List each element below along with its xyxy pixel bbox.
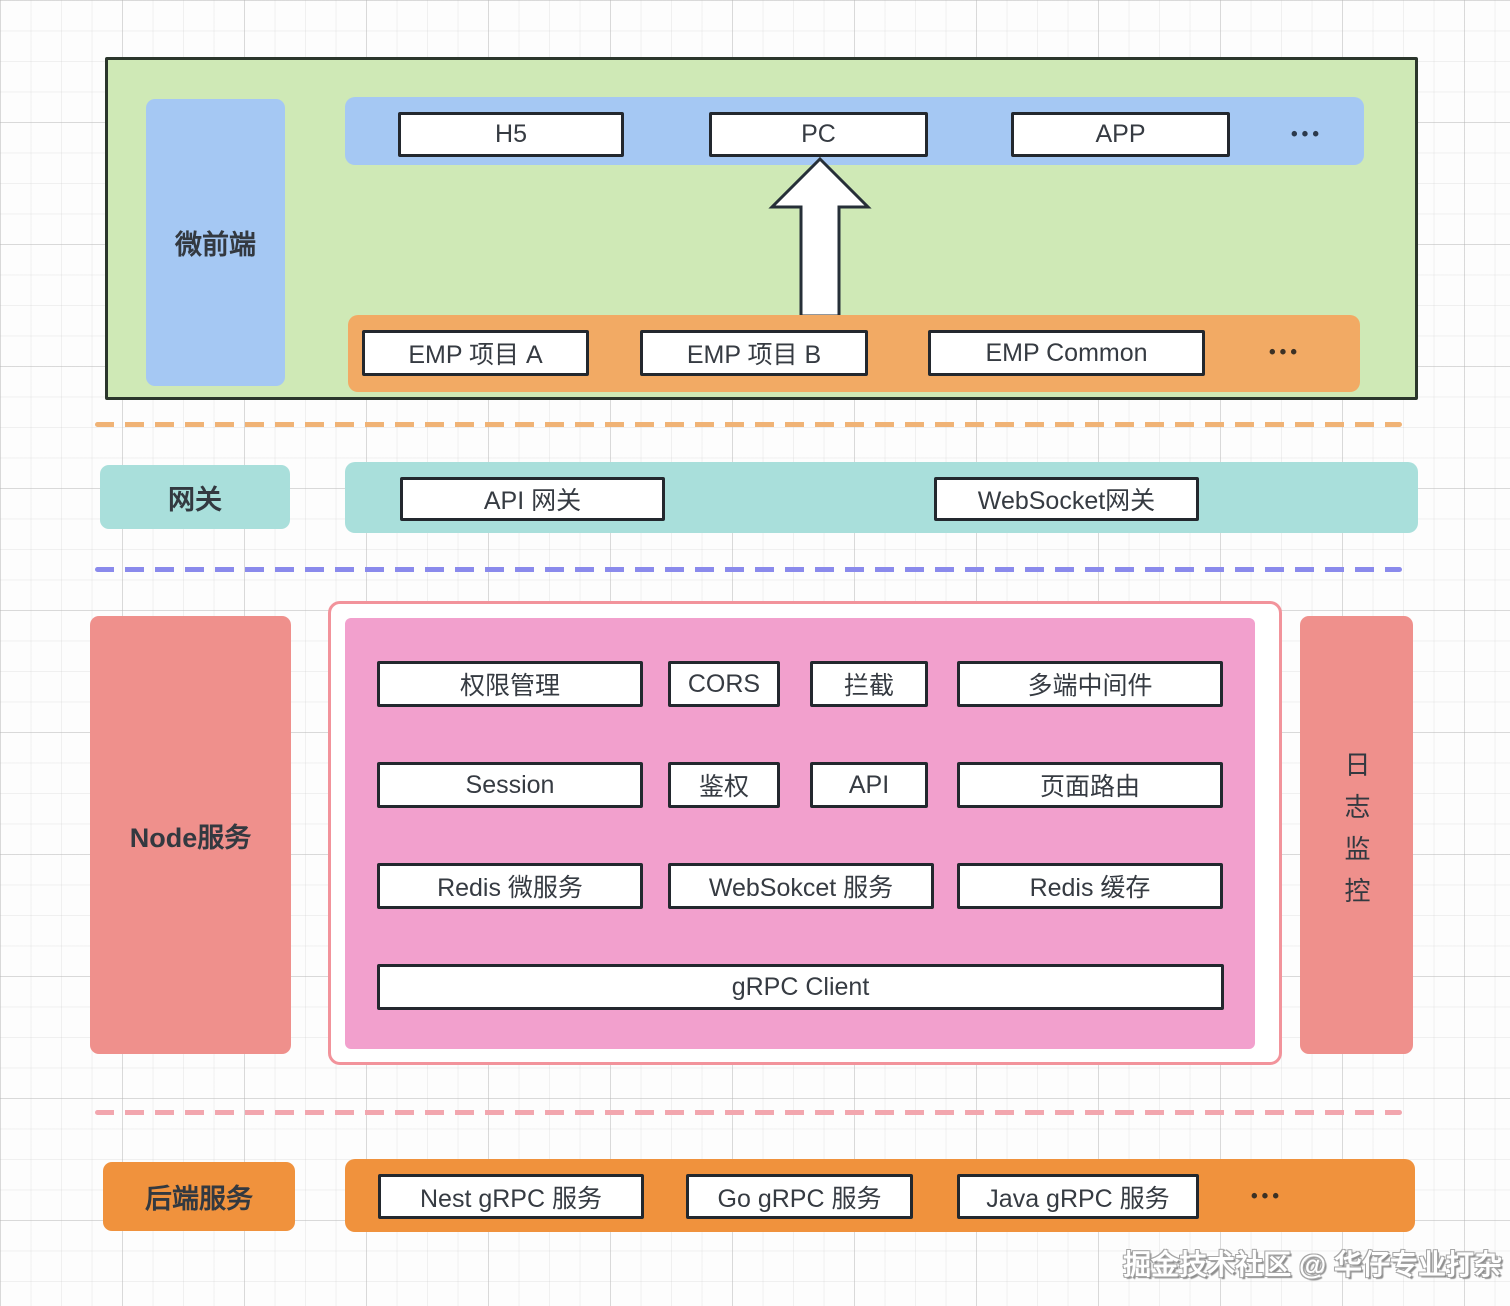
- node-page-router-label: 页面路由: [1040, 767, 1140, 803]
- emp-common-label: EMP Common: [985, 339, 1147, 368]
- backend-ellipsis-text: •••: [1251, 1186, 1283, 1208]
- backend-label-text: 后端服务: [145, 1177, 253, 1216]
- micro-frontend-label: 微前端: [146, 99, 285, 386]
- emp-project-a-label: EMP 项目 A: [408, 335, 542, 371]
- client-app-label: APP: [1095, 120, 1145, 149]
- watermark: 掘金技术社区 @ 华仔专业打杂: [1123, 1243, 1502, 1283]
- node-auth-label: 鉴权: [699, 767, 749, 803]
- node-multi-middleware-label: 多端中间件: [1027, 666, 1152, 702]
- client-pc-label: PC: [801, 120, 836, 149]
- emp-box-common: EMP Common: [928, 330, 1205, 376]
- gateway-box-api: API 网关: [400, 477, 665, 521]
- upward-arrow-icon: [760, 150, 880, 322]
- node-session-label: Session: [466, 771, 555, 800]
- backend-go-label: Go gRPC 服务: [718, 1179, 882, 1215]
- node-redis-microservice-label: Redis 微服务: [437, 868, 583, 904]
- micro-frontend-label-text: 微前端: [175, 223, 256, 262]
- node-cors-label: CORS: [688, 670, 760, 699]
- gateway-label-text: 网关: [168, 478, 222, 517]
- architecture-diagram: 微前端 H5 PC APP ••• EMP 项目 A EMP 项目 B EMP …: [0, 0, 1510, 1306]
- node-box-cors: CORS: [668, 661, 780, 707]
- node-box-websocket-service: WebSokcet 服务: [668, 863, 934, 909]
- clients-ellipsis-text: •••: [1291, 124, 1323, 146]
- node-box-grpc-client: gRPC Client: [377, 964, 1224, 1010]
- node-intercept-label: 拦截: [844, 666, 894, 702]
- log-monitor-label-text: 日志监控: [1338, 751, 1375, 919]
- divider-after-micro-frontend: [95, 422, 1402, 427]
- node-box-permission: 权限管理: [377, 661, 643, 707]
- gateway-websocket-label: WebSocket网关: [978, 481, 1155, 517]
- gateway-box-websocket: WebSocket网关: [934, 477, 1199, 521]
- backend-box-nest: Nest gRPC 服务: [378, 1174, 644, 1219]
- backend-box-java: Java gRPC 服务: [957, 1174, 1199, 1219]
- watermark-text: 掘金技术社区 @ 华仔专业打杂: [1123, 1249, 1502, 1280]
- node-box-auth: 鉴权: [668, 762, 780, 808]
- node-box-api: API: [810, 762, 928, 808]
- node-api-label: API: [849, 771, 889, 800]
- gateway-api-label: API 网关: [484, 481, 581, 517]
- backend-nest-label: Nest gRPC 服务: [420, 1179, 602, 1215]
- emp-ellipsis: •••: [1240, 330, 1330, 376]
- backend-ellipsis: •••: [1222, 1174, 1312, 1219]
- emp-ellipsis-text: •••: [1269, 342, 1301, 364]
- gateway-label: 网关: [100, 465, 290, 529]
- client-h5-label: H5: [495, 120, 527, 149]
- emp-box-project-a: EMP 项目 A: [362, 330, 589, 376]
- node-box-redis-microservice: Redis 微服务: [377, 863, 643, 909]
- node-box-session: Session: [377, 762, 643, 808]
- node-services-label: Node服务: [90, 616, 291, 1054]
- client-box-h5: H5: [398, 112, 624, 157]
- node-box-multi-middleware: 多端中间件: [957, 661, 1223, 707]
- backend-java-label: Java gRPC 服务: [986, 1179, 1169, 1215]
- node-grpc-client-label: gRPC Client: [732, 973, 870, 1002]
- log-monitor-label: 日志监控: [1300, 616, 1413, 1054]
- node-permission-label: 权限管理: [460, 666, 560, 702]
- node-services-label-text: Node服务: [130, 816, 252, 855]
- node-box-redis-cache: Redis 缓存: [957, 863, 1223, 909]
- node-box-page-router: 页面路由: [957, 762, 1223, 808]
- node-redis-cache-label: Redis 缓存: [1030, 868, 1151, 904]
- client-box-app: APP: [1011, 112, 1230, 157]
- divider-after-gateway: [95, 567, 1402, 572]
- node-websocket-service-label: WebSokcet 服务: [709, 868, 893, 904]
- divider-after-node-services: [95, 1110, 1402, 1115]
- backend-label: 后端服务: [103, 1162, 295, 1231]
- backend-box-go: Go gRPC 服务: [686, 1174, 913, 1219]
- node-box-intercept: 拦截: [810, 661, 928, 707]
- clients-ellipsis: •••: [1262, 112, 1352, 157]
- emp-box-project-b: EMP 项目 B: [640, 330, 868, 376]
- emp-project-b-label: EMP 项目 B: [687, 335, 821, 371]
